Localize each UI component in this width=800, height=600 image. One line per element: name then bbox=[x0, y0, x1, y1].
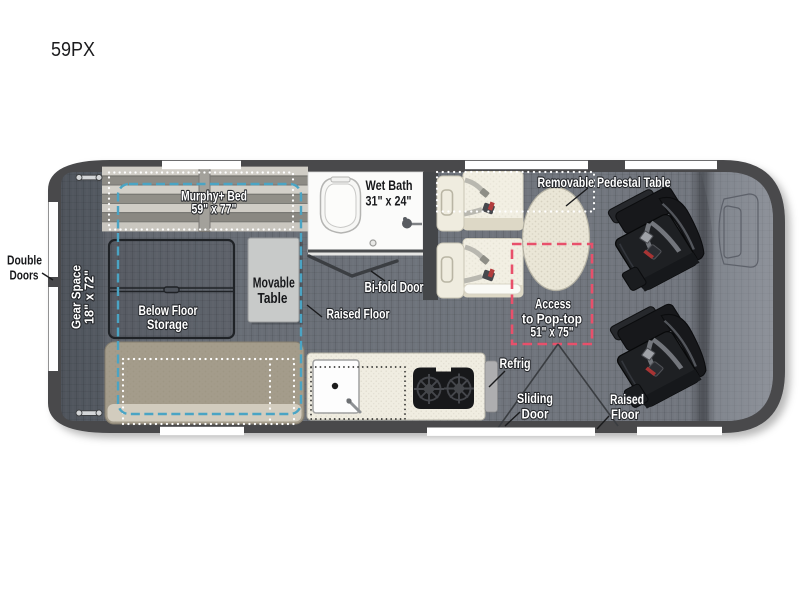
svg-text:Door: Door bbox=[522, 407, 550, 422]
svg-text:59PX: 59PX bbox=[51, 39, 95, 61]
svg-text:Refrig: Refrig bbox=[500, 356, 531, 371]
svg-text:31" x 24": 31" x 24" bbox=[366, 194, 412, 209]
svg-text:Doors: Doors bbox=[10, 269, 39, 283]
svg-text:Floor: Floor bbox=[611, 407, 640, 422]
svg-text:Below Floor: Below Floor bbox=[139, 303, 199, 318]
svg-text:59" x 77": 59" x 77" bbox=[192, 202, 237, 217]
svg-text:Movable: Movable bbox=[253, 276, 295, 292]
svg-text:Raised: Raised bbox=[610, 392, 644, 407]
svg-text:Raised Floor: Raised Floor bbox=[327, 307, 391, 322]
svg-text:Removable Pedestal Table: Removable Pedestal Table bbox=[538, 175, 671, 190]
svg-text:Wet Bath: Wet Bath bbox=[366, 178, 413, 193]
svg-text:Storage: Storage bbox=[147, 317, 188, 332]
svg-text:Double: Double bbox=[7, 254, 42, 268]
svg-text:51" x 75": 51" x 75" bbox=[531, 325, 574, 340]
svg-text:Sliding: Sliding bbox=[517, 391, 553, 406]
svg-text:Bi-fold Door: Bi-fold Door bbox=[365, 280, 424, 296]
svg-text:18" x 72": 18" x 72" bbox=[83, 270, 97, 324]
svg-text:Gear Space: Gear Space bbox=[70, 265, 84, 329]
svg-text:Table: Table bbox=[258, 291, 288, 307]
svg-text:Access: Access bbox=[535, 297, 571, 312]
